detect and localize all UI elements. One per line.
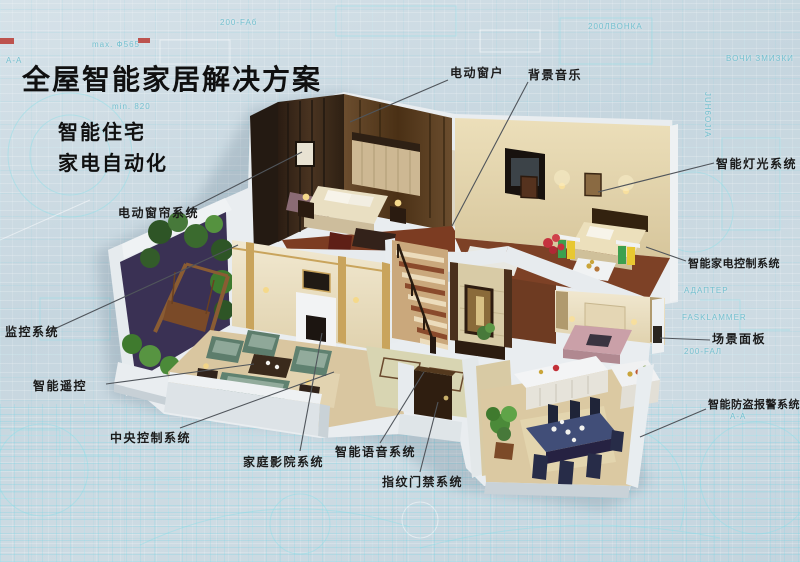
page-subtitle: 智能住宅 家电自动化 — [58, 118, 168, 180]
callout-smart-remote: 智能遥控 — [33, 377, 87, 394]
callout-monitoring: 监控系统 — [5, 323, 59, 340]
callout-scene-panel: 场景面板 — [712, 330, 766, 347]
fingerprint-door — [414, 370, 452, 420]
callout-electric-curtain: 电动窗帘系统 — [118, 204, 199, 221]
callout-background-music: 背景音乐 — [528, 66, 582, 83]
callout-voice-system: 智能语音系统 — [335, 443, 416, 460]
poster-canvas: max. Ф565 min. 820 200-FAб 200ЛВОНКА А-А… — [0, 0, 800, 562]
callout-smart-lighting: 智能灯光系统 — [716, 155, 797, 172]
leader-burglar-alarm — [640, 409, 706, 437]
callout-home-theater: 家庭影院系统 — [243, 453, 324, 470]
callout-fingerprint-access: 指纹门禁系统 — [382, 473, 463, 490]
subtitle-line-1: 智能住宅 — [58, 118, 168, 149]
subtitle-line-2: 家电自动化 — [58, 149, 168, 180]
leader-scene-panel — [660, 338, 710, 340]
staircase — [385, 238, 448, 354]
callout-electric-window: 电动窗户 — [450, 64, 504, 81]
callout-appliance-control: 智能家电控制系统 — [688, 255, 780, 271]
callout-burglar-alarm: 智能防盗报警系统 — [708, 396, 800, 412]
page-title: 全屋智能家居解决方案 — [22, 58, 322, 98]
art-niche-wall — [450, 262, 512, 360]
home-theater-tv — [303, 270, 330, 292]
scene-panel-device — [653, 326, 662, 343]
callout-central-control: 中央控制系统 — [110, 429, 191, 446]
room-dining-kitchen — [462, 356, 660, 498]
